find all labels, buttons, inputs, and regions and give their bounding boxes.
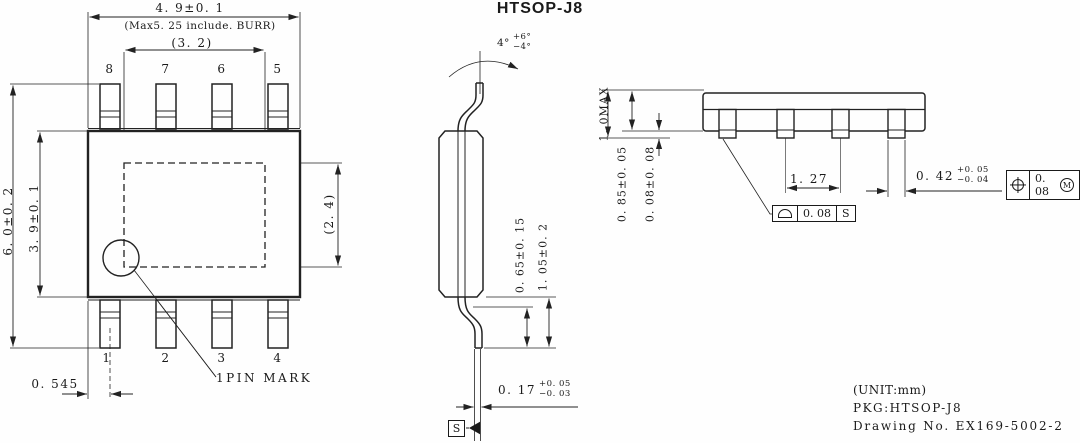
lead-width-tolerance: +0. 05 −0. 04 <box>957 166 989 186</box>
datum-s-box: S <box>448 420 465 437</box>
dim-lead-angle: 4° +6° −4° <box>497 33 531 53</box>
dim-pin1-offset: 0. 545 <box>31 377 78 391</box>
top-view-pins-top <box>100 84 288 129</box>
drawing-title: HTSOP-J8 <box>497 0 583 18</box>
dim-lead-height: 1. 05±0. 2 <box>537 223 550 291</box>
side-view-top-lead <box>458 83 483 131</box>
fcf-position-value: 0. 08 M <box>1030 171 1079 199</box>
dim-lead-thickness: 0. 17 +0. 05 −0. 03 <box>498 380 571 400</box>
lead-thickness-base: 0. 17 <box>498 383 536 397</box>
pkg-name: PKG:HTSOP-J8 <box>853 401 962 415</box>
pin-number-8: 8 <box>105 62 114 76</box>
side-view-bottom-lead <box>458 297 482 348</box>
pin-number-1: 1 <box>102 351 111 365</box>
dim-body-thickness: 0. 85±0. 05 <box>616 146 629 222</box>
top-view <box>10 12 342 399</box>
lead-thickness-tolerance: +0. 05 −0. 03 <box>539 380 571 400</box>
fcf-profile-value: 0. 08 <box>798 206 837 221</box>
dim-body-height: 3. 9±0. 1 <box>27 183 41 252</box>
dim-overall-height: 6. 0±0. 2 <box>1 186 15 255</box>
unit-note: (UNIT:mm) <box>853 383 927 397</box>
profile-symbol-icon <box>773 206 798 221</box>
fcf-profile-datum: S <box>837 206 855 221</box>
end-view <box>602 90 1002 214</box>
lead-width-base: 0. 42 <box>916 169 954 183</box>
pin-number-6: 6 <box>217 62 226 76</box>
position-symbol-icon <box>1007 171 1030 199</box>
lead-angle-tolerance: +6° −4° <box>513 33 531 53</box>
fcf-position: 0. 08 M <box>1006 170 1080 200</box>
side-view-body <box>439 131 483 297</box>
pin-number-7: 7 <box>161 62 170 76</box>
pin-number-2: 2 <box>161 351 170 365</box>
dim-overall-height-end: 1. 0MAX <box>598 86 611 141</box>
pin1-mark-label: 1PIN MARK <box>216 371 312 385</box>
dim-lead-width: 0. 42 +0. 05 −0. 04 <box>916 166 989 186</box>
dim-pad-height: (2. 4) <box>322 193 336 234</box>
dim-max-burr: (Max5. 25 include. BURR) <box>124 20 275 32</box>
pin-number-5: 5 <box>273 62 282 76</box>
package-outline-drawing: HTSOP-J8 4. 9±0. 1 (Max5. 25 include. BU… <box>0 0 1080 443</box>
lead-angle-base: 4° <box>497 37 510 49</box>
dim-standoff: 0. 65±0. 15 <box>514 217 527 293</box>
dim-body-width: 4. 9±0. 1 <box>155 1 224 15</box>
datum-s-label: S <box>453 422 461 435</box>
pin-number-3: 3 <box>217 351 226 365</box>
top-view-body <box>88 131 300 297</box>
dim-lead-pitch: 1. 27 <box>790 172 828 186</box>
dim-pad-width: (3. 2) <box>171 36 212 50</box>
mmc-modifier-icon: M <box>1060 178 1074 192</box>
fcf-profile: 0. 08 S <box>772 205 856 222</box>
pin-number-4: 4 <box>273 351 282 365</box>
dim-standoff-end: 0. 08±0. 08 <box>644 146 657 222</box>
drawing-number: Drawing No. EX169-5002-2 <box>853 419 1064 433</box>
top-view-pins-bottom <box>100 300 288 348</box>
